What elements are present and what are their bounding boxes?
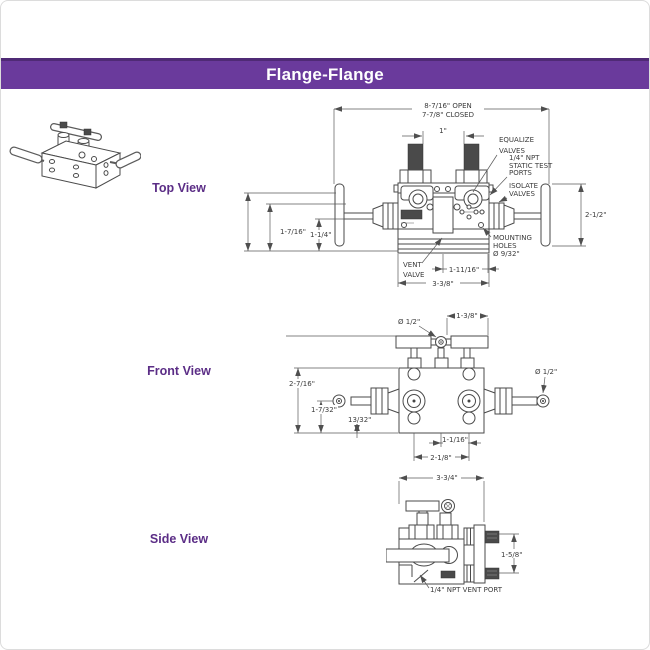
svg-text:HOLES: HOLES <box>493 242 517 250</box>
vent-port-label: 1/4" NPT VENT PORT <box>430 586 503 594</box>
dim-body-width: 3-3/8" <box>432 280 453 288</box>
dim-port-spacing: 1-11/16" <box>449 266 479 274</box>
side-view-geometry <box>386 500 499 585</box>
vent-valve-label: VENT <box>403 261 422 269</box>
dim-closed: 7-7/8" CLOSED <box>422 111 474 119</box>
svg-text:VALVES: VALVES <box>509 190 535 198</box>
svg-text:VALVE: VALVE <box>403 271 424 279</box>
dim-flange-height: 1-5/8" <box>501 551 522 559</box>
dim-left-outer: 1-7/16" <box>280 228 306 236</box>
dim-body-height: 2-7/16" <box>289 380 315 388</box>
isometric-manifold <box>14 122 137 188</box>
title-banner: Flange-Flange <box>1 58 649 89</box>
svg-text:Ø 9/32": Ø 9/32" <box>493 250 520 258</box>
dim-flange-spacing: 2-1/8" <box>430 454 451 462</box>
dim-left-inner: 1-1/4" <box>310 231 331 239</box>
dim-open: 8-7/16" OPEN <box>424 102 472 110</box>
equalize-valves-label: EQUALIZE <box>499 136 534 144</box>
top-view-drawing: 8-7/16" OPEN 7-7/8" CLOSED 1" 1-7/16" 1-… <box>236 91 626 296</box>
static-test-ports-label: 1/4" NPT <box>509 154 540 162</box>
dim-hole-offset: 13/32" <box>348 416 371 424</box>
side-view-label: Side View <box>134 532 224 546</box>
side-view-drawing: 3-3/4" 1-5/8" 1/4" NPT VENT PORT <box>386 469 586 629</box>
dia-handle-side: Ø 1/2" <box>535 368 557 376</box>
dim-center-height: 1-7/32" <box>311 406 337 414</box>
dim-handle-span: 2-1/2" <box>585 211 606 219</box>
brand-logo <box>401 210 422 219</box>
front-view-geometry <box>286 336 549 433</box>
isometric-view-image <box>6 93 141 198</box>
dim-handle-end: 1-3/8" <box>456 312 477 320</box>
front-view-drawing: Ø 1/2" 1-3/8" Ø 1/2" 2-7/16" 1-7/32" 13/… <box>286 306 606 471</box>
dim-body-depth: 3-3/4" <box>436 474 457 482</box>
page-title: Flange-Flange <box>266 65 384 85</box>
product-diagram-page: Flange-Flange Top View Front View Side V… <box>0 0 650 650</box>
dim-port-spacing: 1-1/16" <box>442 436 468 444</box>
dim-stem-spacing: 1" <box>439 127 447 135</box>
isolate-valves-label: ISOLATE <box>509 182 538 190</box>
dia-handle-top: Ø 1/2" <box>398 318 420 326</box>
svg-text:PORTS: PORTS <box>509 169 532 177</box>
front-view-label: Front View <box>134 364 224 378</box>
top-view-label: Top View <box>134 181 224 195</box>
mounting-holes-label: MOUNTING <box>493 234 532 242</box>
